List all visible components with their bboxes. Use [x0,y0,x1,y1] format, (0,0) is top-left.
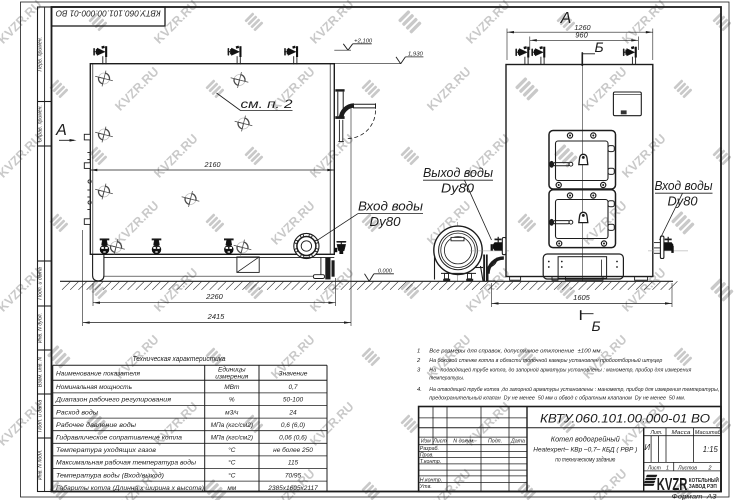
svg-text:Номинальная мощность: Номинальная мощность [56,384,132,391]
svg-text:Масса: Масса [672,430,691,436]
svg-text:Значение: Значение [279,370,308,377]
svg-text:КВТУ.060.101.00.000-01 ВО: КВТУ.060.101.00.000-01 ВО [56,8,161,17]
svg-text:115: 115 [288,460,299,467]
svg-text:0,7: 0,7 [288,384,297,391]
svg-text:1605: 1605 [573,293,591,302]
svg-text:Справ. примен.: Справ. примен. [37,105,43,142]
svg-text:Техническая характеристика: Техническая характеристика [133,356,226,363]
svg-text:Инв. N подл.: Инв. N подл. [37,450,43,480]
svg-text:Лит.: Лит. [650,430,663,436]
svg-text:Все размеры для справок, допус: Все размеры для справок, допустимое откл… [429,348,602,354]
svg-text:МПа (кгс/см2): МПа (кгс/см2) [211,422,253,429]
svg-text:А: А [55,122,67,139]
svg-text:ЗАВОД РЭП: ЗАВОД РЭП [689,484,717,490]
svg-text:2: 2 [708,465,712,471]
svg-text:На боковой стенке котла в обла: На боковой стенке котла в области топочн… [429,357,663,364]
svg-text:Лист: Лист [647,465,661,471]
svg-text:Подп.: Подп. [488,438,502,444]
svg-text:Габариты котла (Длинна х ширин: Габариты котла (Длинна х ширина х высота… [56,484,204,492]
svg-text:+2,100: +2,100 [354,38,373,44]
svg-text:Расход воды: Расход воды [56,408,98,416]
svg-text:температуры.: температуры. [429,376,464,382]
svg-text:Б: Б [594,39,603,55]
svg-text:1,930: 1,930 [408,51,424,57]
svg-text:4.: 4. [417,387,422,393]
svg-text:Б: Б [591,318,600,334]
svg-text:2415: 2415 [207,312,226,321]
svg-text:Вход воды: Вход воды [655,178,713,193]
svg-text:Разраб.: Разраб. [420,446,439,452]
svg-text:Лист: Лист [432,438,447,444]
svg-text:Наименование показателя: Наименование показателя [56,370,140,377]
svg-text:Перв. примен.: Перв. примен. [37,37,43,71]
svg-text:А: А [560,10,572,27]
svg-text:1:15: 1:15 [703,445,719,454]
svg-text:70/95: 70/95 [285,472,302,479]
svg-text:м3/ч: м3/ч [225,409,239,416]
svg-text:На подводящей трубе котла, д: На подводящей трубе котла, до запорной а… [429,366,691,373]
svg-text:Утв.: Утв. [420,484,432,490]
svg-text:Изм: Изм [421,438,431,444]
svg-text:1: 1 [666,465,669,471]
svg-text:Dy80: Dy80 [370,214,402,229]
svg-text:МВт: МВт [224,384,240,391]
svg-text:1: 1 [417,348,420,354]
svg-text:Пров.: Пров. [420,452,434,458]
svg-text:Гидравлическое сопративление к: Гидравлическое сопративление котла [56,434,182,442]
svg-text:0.000: 0.000 [378,268,393,274]
svg-text:0,06 (0,6): 0,06 (0,6) [279,435,307,442]
svg-text:N докум.: N докум. [453,438,474,444]
svg-text:Вход воды: Вход воды [358,199,423,214]
svg-text:Котел водогрейный: Котел водогрейный [551,434,620,443]
svg-text:2160: 2160 [204,160,221,169]
svg-text:КОТЕЛЬНЫЙ: КОТЕЛЬНЫЙ [689,476,719,484]
svg-text:50-100: 50-100 [283,397,304,404]
svg-text:Дата: Дата [510,438,525,444]
svg-text:Листов: Листов [677,465,697,471]
svg-text:Т.контр.: Т.контр. [420,459,441,465]
svg-text:Температура воды (Вход/выход): Температура воды (Вход/выход) [56,471,164,479]
svg-text:24: 24 [288,409,297,416]
svg-text:Взам. инв. N: Взам. инв. N [37,357,43,387]
svg-text:см. п. 2: см. п. 2 [241,99,294,111]
svg-text:960: 960 [575,31,588,40]
svg-text:МПа (кгс/см2): МПа (кгс/см2) [211,435,253,442]
svg-text:Масштаб: Масштаб [695,430,722,436]
svg-text:°С: °С [228,459,236,467]
svg-text:Выход воды: Выход воды [423,165,493,180]
svg-text:Формат А3: Формат А3 [672,493,717,500]
svg-text:°С: °С [228,446,236,454]
svg-text:Единицы: Единицы [218,366,246,374]
svg-text:%: % [229,397,235,404]
svg-text:КВТУ.060.101.00.000-01 ВО: КВТУ.060.101.00.000-01 ВО [540,412,710,426]
svg-text:Инв. N дубл.: Инв. N дубл. [37,313,43,343]
svg-text:Dy80: Dy80 [668,194,699,209]
svg-text:0,6 (6,0): 0,6 (6,0) [281,422,305,429]
svg-text:Максимальная рабочая температу: Максимальная рабочая температура воды [56,459,196,467]
svg-text:по техническому заданию: по техническому заданию [555,455,615,463]
svg-text:не более 250: не более 250 [273,446,313,454]
svg-text:измерения: измерения [215,374,248,381]
svg-text:Heatexpert– КВр –0,7– КБД ( РВ: Heatexpert– КВр –0,7– КБД ( РВР ) [533,447,637,454]
svg-text:предохранительный клапан Dу н: предохранительный клапан Dу не менее 50 … [429,394,685,401]
svg-text:Температура уходящих газов: Температура уходящих газов [56,446,156,454]
svg-text:мм: мм [227,485,236,492]
svg-text:Подп. и дата: Подп. и дата [37,267,43,300]
svg-text:Dy80: Dy80 [441,181,475,196]
svg-text:На отводящей трубе котла ,до з: На отводящей трубе котла ,до запорной ар… [429,386,719,393]
svg-text:2385х1605х2117: 2385х1605х2117 [267,485,318,492]
svg-text:Подп. и дата: Подп. и дата [37,400,43,433]
svg-text:°С: °С [228,471,236,479]
svg-text:Рабочее давление воды: Рабочее давление воды [56,421,136,429]
svg-text:2260: 2260 [205,292,224,301]
svg-text:Н.контр.: Н.контр. [420,477,442,483]
svg-text:И: И [644,443,650,452]
svg-text:Диапазон рабочего регулировани: Диапазон рабочего регулирования [55,396,171,404]
svg-text:KVZR: KVZR [657,474,688,494]
